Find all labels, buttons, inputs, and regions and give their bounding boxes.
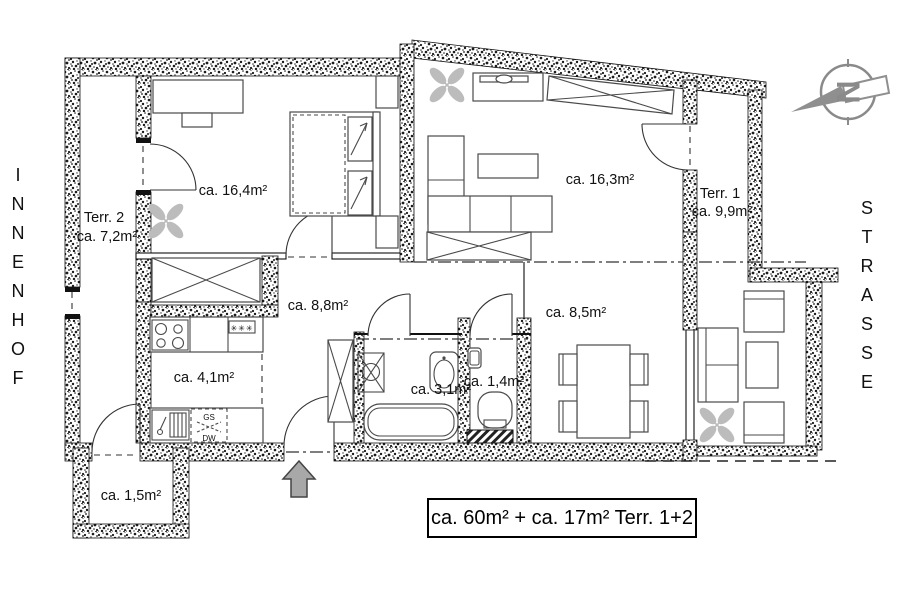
label-terr1-area: ca. 9,9m² bbox=[692, 204, 753, 220]
toilet bbox=[478, 392, 512, 428]
compass-letter: N bbox=[830, 80, 866, 103]
shaft bbox=[467, 430, 513, 443]
freezer-stars: ✳✳✳ bbox=[230, 324, 253, 333]
plant-icon bbox=[428, 66, 467, 105]
dishwasher-label-dw: DW bbox=[202, 434, 216, 443]
total-area-text: ca. 60m² + ca. 17m² Terr. 1+2 bbox=[431, 507, 693, 530]
label-bedroom-area: ca. 16,4m² bbox=[199, 183, 268, 199]
chair bbox=[559, 401, 577, 432]
bathtub bbox=[364, 404, 458, 440]
desk bbox=[153, 80, 243, 113]
dining-furniture bbox=[559, 345, 648, 438]
label-balcony-area: ca. 1,5m² bbox=[101, 488, 162, 504]
kitchen-counter-top bbox=[150, 317, 263, 352]
chair bbox=[630, 401, 648, 432]
label-living-area: ca. 16,3m² bbox=[566, 172, 635, 188]
wardrobe bbox=[152, 258, 260, 302]
label-wc-area: ca. 1,4m² bbox=[464, 374, 525, 390]
total-area-box: ca. 60m² + ca. 17m² Terr. 1+2 bbox=[427, 498, 697, 538]
chair bbox=[559, 354, 577, 385]
north-compass-icon: N bbox=[791, 59, 889, 125]
dining-table bbox=[577, 345, 630, 438]
label-terr2-name: Terr. 2 bbox=[84, 210, 124, 226]
dishwasher-label-gs: GS bbox=[203, 413, 215, 422]
plant-icon bbox=[698, 406, 737, 445]
street-label: STRASSE bbox=[856, 198, 877, 401]
label-hall-area: ca. 8,8m² bbox=[288, 298, 349, 314]
plant-icon bbox=[147, 202, 186, 241]
label-kitchen-area: ca. 4,1m² bbox=[174, 370, 235, 386]
courtyard-label: INNENHOF bbox=[7, 165, 28, 397]
desk-chair bbox=[182, 113, 212, 127]
corner-sofa bbox=[428, 136, 552, 232]
hall-closet bbox=[328, 340, 353, 422]
outdoor-chair bbox=[744, 291, 784, 332]
entrance-arrow-icon bbox=[283, 461, 315, 497]
coffee-table bbox=[478, 154, 538, 178]
lowboard bbox=[427, 232, 531, 260]
outdoor-chair bbox=[744, 402, 784, 443]
floor-plan: ✳✳✳ GS DW bbox=[0, 0, 900, 600]
nightstand bbox=[376, 76, 398, 108]
label-terr2-area: ca. 7,2m² bbox=[77, 229, 138, 245]
living-furniture bbox=[427, 73, 674, 260]
nightstand bbox=[376, 216, 398, 248]
wc-washbasin bbox=[468, 348, 481, 368]
outdoor-sofa bbox=[698, 328, 738, 402]
outdoor-table bbox=[746, 342, 778, 388]
label-dining-area: ca. 8,5m² bbox=[546, 305, 607, 321]
chair bbox=[630, 354, 648, 385]
label-terr1-name: Terr. 1 bbox=[700, 186, 740, 202]
label-bath-area: ca. 3,1m² bbox=[411, 382, 472, 398]
